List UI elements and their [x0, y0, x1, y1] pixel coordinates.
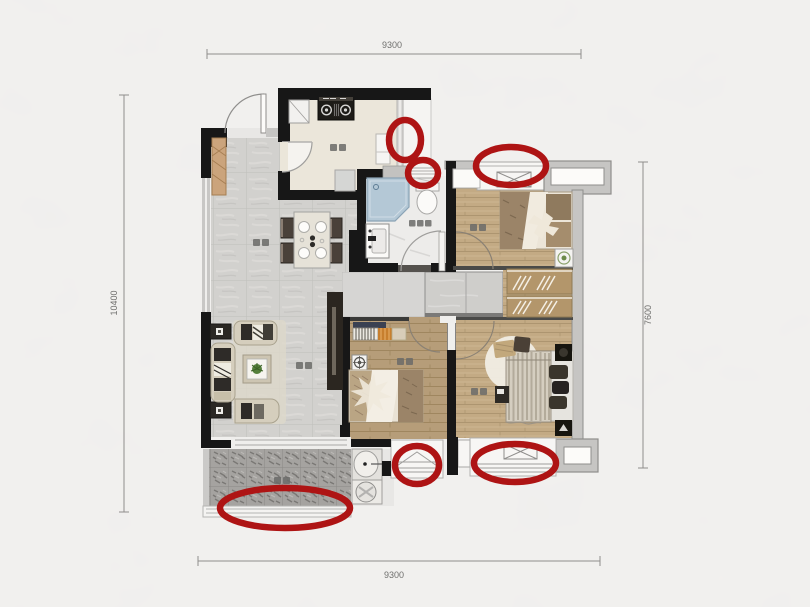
svg-text:9300: 9300	[382, 40, 402, 50]
svg-text:9300: 9300	[384, 570, 404, 580]
svg-text:10400: 10400	[109, 290, 119, 315]
svg-text:7600: 7600	[643, 305, 653, 325]
